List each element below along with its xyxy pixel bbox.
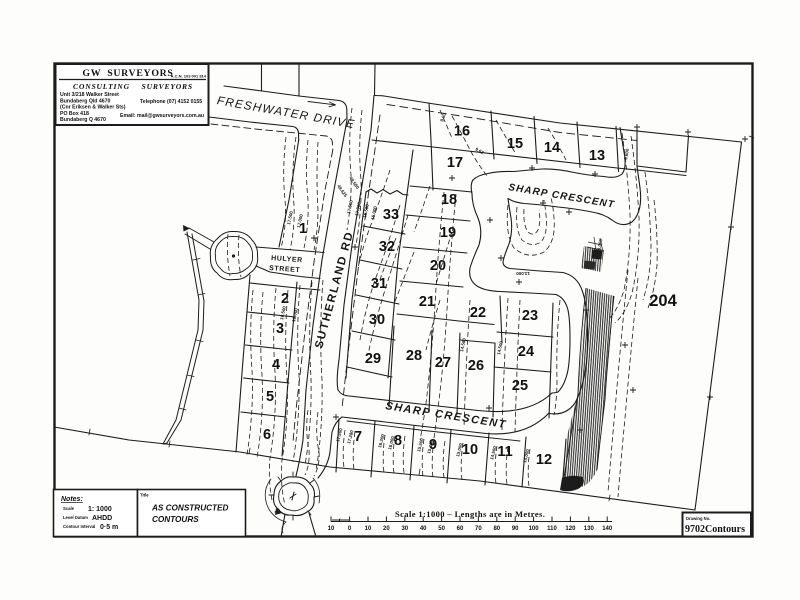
svg-text:23: 23 xyxy=(522,308,538,324)
svg-text:70: 70 xyxy=(475,526,482,532)
svg-text:49.625: 49.625 xyxy=(336,184,348,199)
svg-text:1: 1000: 1: 1000 xyxy=(88,506,112,513)
svg-text:140: 140 xyxy=(602,526,613,532)
svg-text:4: 4 xyxy=(272,357,280,373)
svg-text:7: 7 xyxy=(354,429,362,445)
svg-text:17: 17 xyxy=(447,155,463,171)
svg-text:Contour Interval: Contour Interval xyxy=(63,524,95,529)
svg-text:16.500: 16.500 xyxy=(279,305,287,320)
svg-text:0·5 m: 0·5 m xyxy=(100,524,118,531)
svg-text:9.62: 9.62 xyxy=(475,147,486,156)
svg-text:AHDD: AHDD xyxy=(92,515,112,522)
svg-text:14: 14 xyxy=(544,140,560,156)
svg-text:CONSULTING SURVEYORS: CONSULTING SURVEYORS xyxy=(73,82,193,91)
svg-text:Title: Title xyxy=(140,493,149,498)
svg-text:CONTOURS: CONTOURS xyxy=(152,515,199,524)
svg-text:14.500: 14.500 xyxy=(496,340,504,355)
svg-text:20: 20 xyxy=(383,526,390,532)
svg-text:9.600: 9.600 xyxy=(623,148,630,160)
svg-text:19: 19 xyxy=(440,225,456,241)
svg-text:28: 28 xyxy=(406,348,422,364)
svg-text:12: 12 xyxy=(536,452,552,468)
svg-text:5: 5 xyxy=(266,389,274,405)
svg-text:21: 21 xyxy=(419,294,435,310)
svg-text:110: 110 xyxy=(547,526,557,532)
svg-text:22: 22 xyxy=(470,305,486,321)
svg-text:30: 30 xyxy=(401,526,408,532)
svg-text:24: 24 xyxy=(518,344,534,360)
svg-text:13.000: 13.000 xyxy=(516,271,530,276)
svg-text:80: 80 xyxy=(493,526,500,532)
svg-text:90: 90 xyxy=(512,526,519,532)
svg-text:204: 204 xyxy=(649,292,677,310)
svg-text:25: 25 xyxy=(512,378,528,394)
svg-text:60: 60 xyxy=(457,526,464,532)
svg-text:13: 13 xyxy=(589,148,605,164)
svg-text:(Cnr Eriksen & Walker Sts): (Cnr Eriksen & Walker Sts) xyxy=(60,105,126,111)
svg-text:Telephone (07) 4152 0155: Telephone (07) 4152 0155 xyxy=(140,99,202,105)
svg-text:GW SURVEYORS: GW SURVEYORS xyxy=(82,68,173,79)
svg-text:Scale 1:1000 – Lengths a: Scale 1:1000 – Lengths are in Metres. xyxy=(395,509,545,519)
svg-text:10: 10 xyxy=(365,526,372,532)
svg-text:40: 40 xyxy=(420,526,427,532)
svg-text:0: 0 xyxy=(348,526,352,532)
svg-text:14.000: 14.000 xyxy=(522,448,531,463)
svg-text:16.500: 16.500 xyxy=(362,203,370,218)
svg-text:Bundaberg Q 4670: Bundaberg Q 4670 xyxy=(60,117,106,123)
svg-text:Notes:: Notes: xyxy=(61,496,83,503)
svg-text:10: 10 xyxy=(462,442,478,458)
svg-text:17.500: 17.500 xyxy=(346,199,354,214)
svg-text:Scale: Scale xyxy=(63,506,75,511)
svg-text:10: 10 xyxy=(328,526,335,532)
svg-text:3: 3 xyxy=(276,321,284,337)
svg-text:16.300: 16.300 xyxy=(377,433,386,448)
svg-text:Drawing No.: Drawing No. xyxy=(686,516,710,521)
svg-text:29: 29 xyxy=(365,351,381,367)
svg-text:SHARP CRESCENT: SHARP CRESCENT xyxy=(508,182,616,211)
svg-text:26: 26 xyxy=(468,358,484,374)
svg-text:100: 100 xyxy=(529,526,540,532)
svg-text:15.000: 15.000 xyxy=(370,205,378,220)
svg-text:15: 15 xyxy=(507,136,523,152)
svg-text:6: 6 xyxy=(263,427,271,443)
svg-text:120: 120 xyxy=(565,526,576,532)
svg-text:50: 50 xyxy=(438,526,445,532)
svg-text:16: 16 xyxy=(454,124,470,140)
svg-text:17.500: 17.500 xyxy=(286,210,294,225)
svg-text:AS CONSTRUCTED: AS CONSTRUCTED xyxy=(151,504,229,513)
svg-text:Email: mail@gwsurveyors.com.au: Email: mail@gwsurveyors.com.au xyxy=(120,113,204,119)
svg-text:Level Datum: Level Datum xyxy=(63,515,88,520)
svg-text:HULYER: HULYER xyxy=(271,255,303,264)
svg-text:49.580: 49.580 xyxy=(348,176,360,191)
svg-text:11: 11 xyxy=(497,444,512,460)
svg-text:A.C.N. 103 001 814: A.C.N. 103 001 814 xyxy=(171,74,207,79)
svg-text:130: 130 xyxy=(584,526,595,532)
svg-text:8: 8 xyxy=(394,433,402,449)
svg-text:9702Contours: 9702Contours xyxy=(685,524,745,535)
svg-text:Unit 3/218 Walker Street: Unit 3/218 Walker Street xyxy=(60,92,119,98)
svg-text:15.500: 15.500 xyxy=(416,437,425,452)
svg-text:SHARP CRESCENT: SHARP CRESCENT xyxy=(385,400,508,431)
svg-text:17.500: 17.500 xyxy=(335,427,344,442)
svg-text:30: 30 xyxy=(369,312,385,328)
